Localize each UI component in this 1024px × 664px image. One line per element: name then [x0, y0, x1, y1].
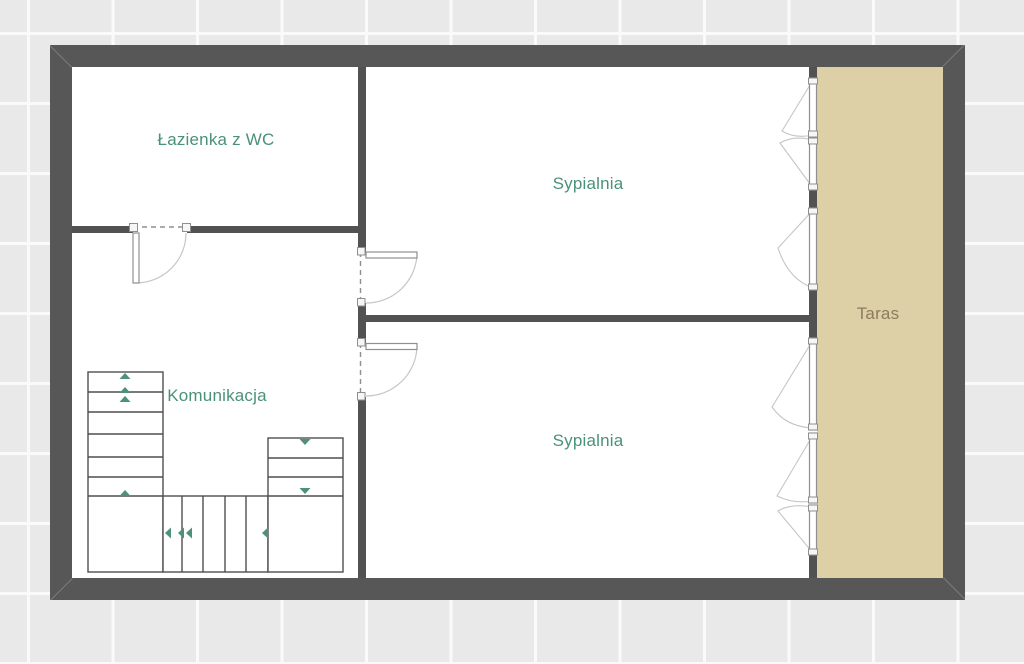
floor-plan-canvas: Łazienka z WC Sypialnia Sypialnia Komuni… [0, 0, 1024, 664]
room-label-bedroom-bottom: Sypialnia [553, 431, 624, 451]
room-label-terrace: Taras [857, 304, 900, 324]
terrace-windows-bottom-bedroom [772, 338, 818, 555]
door-bathroom [130, 224, 191, 284]
room-label-bedroom-top: Sypialnia [553, 174, 624, 194]
door-bedroom-top [358, 248, 418, 307]
door-bedroom-bottom [358, 339, 418, 401]
building-outline: Łazienka z WC Sypialnia Sypialnia Komuni… [50, 45, 965, 600]
room-label-bathroom: Łazienka z WC [158, 130, 275, 150]
terrace-windows-top-bedroom [778, 78, 818, 290]
room-label-hallway: Komunikacja [167, 386, 267, 406]
